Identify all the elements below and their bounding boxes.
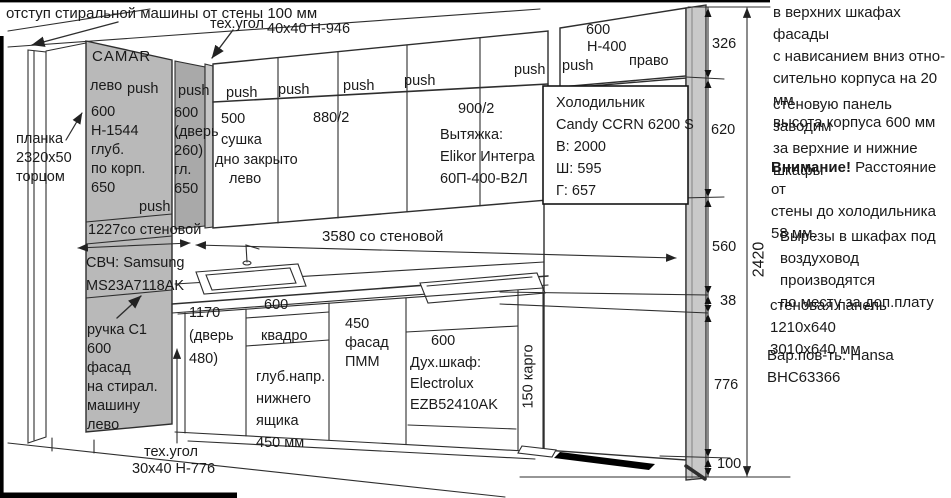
- tech-corner-bottom-size: 30x40 Н-776: [132, 460, 215, 479]
- dim-620-label: 620: [711, 121, 735, 140]
- plank-label: планка 2320x50 торцом: [16, 130, 72, 187]
- tech-corner-top-label: тех.угол: [210, 15, 264, 34]
- fridge-top-push-label: push: [562, 57, 593, 76]
- camar-push2-label: push: [139, 198, 170, 217]
- pmm-label: 450 фасад ПММ: [345, 315, 389, 372]
- camar-push-label: push: [127, 80, 158, 99]
- dim-3580-label: 3580 со стеновой: [322, 227, 443, 246]
- dim-560-label: 560: [712, 238, 736, 257]
- fridge-info-text: Холодильник Candy CCRN 6200 S В: 2000 Ш:…: [556, 92, 694, 202]
- push-label-1: push: [226, 84, 257, 103]
- fridge-top-hinge-label: право: [629, 52, 669, 71]
- dim-38-label: 38: [720, 292, 736, 311]
- tech-corner-arrow: [212, 30, 233, 58]
- drawer-depth-note: глуб.напр. нижнего ящика 450 мм: [256, 366, 325, 454]
- dim-326-label: 326: [712, 35, 736, 54]
- cab600kv-name-label: квадро: [261, 327, 308, 346]
- note-worktop-variant: Вар.пов-ть: Hansa BHC63366: [767, 345, 951, 389]
- oven-label: Дух.шкаф: Electrolux EZB52410AK: [410, 353, 498, 416]
- cab900-label: 900/2: [458, 100, 494, 119]
- camar-hinge-label: лево: [90, 77, 122, 96]
- washer-facade-label: ручка С1 600 фасад на стирал. машину лев…: [87, 321, 158, 435]
- cab1170-label: 1170 (дверь 480): [189, 302, 234, 371]
- microwave-label: СВЧ: Samsung MS23A7118AK: [86, 252, 184, 298]
- sink: [196, 245, 306, 294]
- cab500-hinge-label: лево: [229, 170, 261, 189]
- push-label-4: push: [404, 72, 435, 91]
- cargo-label: 150 карго: [520, 337, 539, 417]
- dim-776-label: 776: [714, 376, 738, 395]
- camar-specs-label: 600 Н-1544 глуб. по корп. 650: [91, 103, 145, 198]
- cab500-label: 500 сушка: [221, 109, 262, 151]
- push-label-3: push: [343, 77, 374, 96]
- fridge-top-height-label: Н-400: [587, 38, 627, 57]
- column2-push-label: push: [178, 82, 209, 101]
- push-label-2: push: [278, 81, 309, 100]
- oven-width-label: 600: [431, 332, 455, 351]
- cooktop: [420, 273, 545, 303]
- column2-specs-label: 600 (дверь 260) гл. 650: [174, 104, 219, 199]
- attention-title: Внимание!: [771, 159, 851, 176]
- right-side-panel: [686, 5, 706, 480]
- push-label-5: push: [514, 61, 545, 80]
- camar-brand-label: CAMAR: [92, 47, 151, 66]
- dim-1227-label: 1227со стеновой: [88, 221, 201, 240]
- dim-100-label: 100: [717, 455, 741, 474]
- hood-label: Вытяжка: Elikor Интегра 60П-400-В2Л: [440, 124, 535, 190]
- cab600kv-width-label: 600: [264, 296, 288, 315]
- kitchen-drawing: отступ стиральной машины от стены 100 мм…: [0, 0, 951, 498]
- cab500-bottom-note: дно закрыто: [215, 151, 298, 170]
- wall-plank: [28, 50, 46, 443]
- dim-2420-label: 2420: [750, 238, 769, 282]
- tech-corner-top-size: 40x40 Н-946: [267, 20, 350, 39]
- cab880-label: 880/2: [313, 109, 349, 128]
